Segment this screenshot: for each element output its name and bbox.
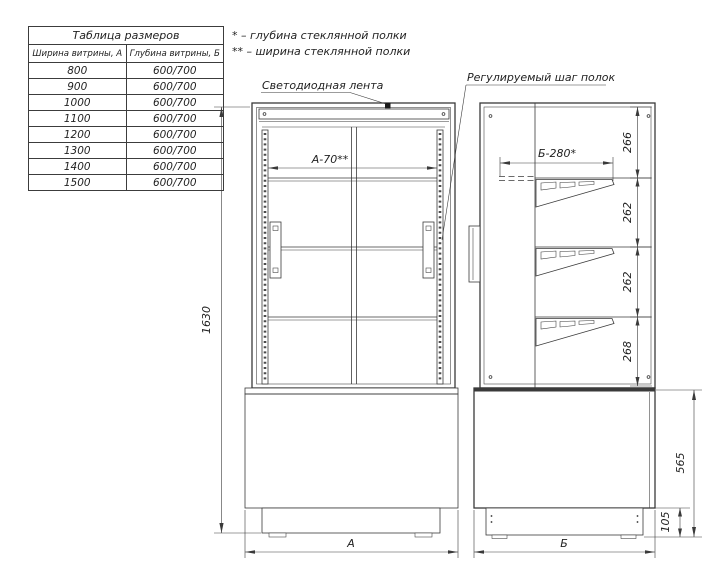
dim-gap-2: 262 — [621, 202, 634, 223]
dim-plinth-height: 105 — [645, 508, 690, 537]
shelf-standard-left — [262, 130, 268, 384]
dim-overall-height-value: 1630 — [200, 306, 213, 334]
screw-dot — [647, 376, 650, 379]
base-top-board — [245, 388, 458, 394]
door-handle-left — [270, 222, 281, 278]
plinth-front — [262, 508, 440, 537]
screw-dot — [263, 113, 266, 116]
technical-drawing: Светодиодная лента Регулируемый шаг поло… — [0, 0, 720, 584]
corrugated-base-panel — [245, 394, 458, 508]
callout-led-strip: Светодиодная лента — [261, 79, 386, 104]
screw-dot — [442, 113, 445, 116]
callout-led-strip-label: Светодиодная лента — [262, 79, 384, 92]
dim-gap-4: 268 — [621, 341, 634, 362]
side-door-handle — [469, 226, 480, 282]
drawing-sheet: Таблица размеров Ширина витрины, А Глуби… — [0, 0, 720, 584]
dim-plinth-height-value: 105 — [659, 512, 672, 533]
base-side — [474, 388, 655, 508]
screw-dot — [647, 115, 650, 118]
door-handle-right — [423, 222, 434, 278]
side-view — [469, 103, 655, 539]
dim-shelf-depth-value: Б-280* — [538, 147, 577, 160]
callout-shelf-pitch-label: Регулируемый шаг полок — [467, 71, 616, 84]
plinth-side — [486, 508, 643, 539]
dim-gap-3: 262 — [621, 272, 634, 293]
shelf-standard-right — [437, 130, 443, 384]
dim-shelf-width-value: А-70** — [311, 153, 349, 166]
screw-dot — [489, 115, 492, 118]
dim-front-width-value: А — [346, 537, 355, 550]
dim-base-height-value: 565 — [674, 453, 687, 474]
led-strip-marker — [385, 103, 391, 109]
dim-gap-1: 266 — [621, 132, 634, 153]
dim-side-depth-value: Б — [560, 537, 568, 550]
screw-dot — [489, 376, 492, 379]
